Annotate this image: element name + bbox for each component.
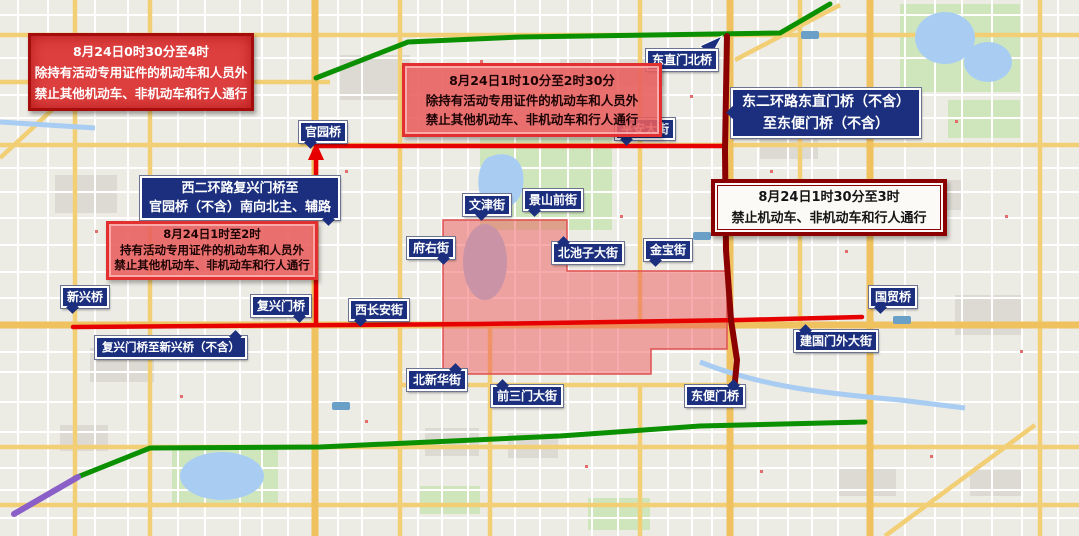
notice-line: 8月24日0时30分至4时 <box>31 41 251 62</box>
route-green-south <box>75 422 865 478</box>
badge-fuyou-street: 府右街 <box>407 237 455 259</box>
badge-label: 西长安街 <box>355 303 403 317</box>
badge-label: 至东便门桥（不含） <box>742 113 910 135</box>
badge-wenjin-street: 文津街 <box>463 194 511 216</box>
badge-label: 金宝街 <box>650 243 686 257</box>
badge-beixinhua-street: 北新华街 <box>407 369 467 391</box>
badge-fuxingmen-to-xinxing: 复兴门桥至新兴桥（不含） <box>95 336 247 359</box>
badge-label: 官园桥（不含）南向北主、辅路 <box>149 198 331 217</box>
badge-label: 府右街 <box>413 241 449 255</box>
badge-jianguomenwai-street: 建国门外大街 <box>794 330 878 352</box>
notice-line: 除持有活动专用证件的机动车和人员外 <box>405 91 659 111</box>
badge-guomao-bridge: 国贸桥 <box>869 286 917 308</box>
notice-line: 除持有活动专用证件的机动车和人员外 <box>31 62 251 83</box>
badge-label: 景山前街 <box>529 193 577 207</box>
notice-line: 持有活动专用证件的机动车和人员外 <box>109 243 315 259</box>
badge-west-changan-street: 西长安街 <box>349 299 409 321</box>
notice-line: 8月24日1时至2时 <box>109 227 315 243</box>
traffic-control-map: 东直门北桥 东二环路东直门桥（不含） 至东便门桥（不含） 平安大街 官园桥 西二… <box>0 0 1079 536</box>
badge-label: 北新华街 <box>413 373 461 387</box>
badge-jinbao-street: 金宝街 <box>644 239 692 261</box>
notice-line: 禁止机动车、非机动车和行人通行 <box>715 208 943 229</box>
badge-label: 新兴桥 <box>67 290 103 304</box>
badge-label: 国贸桥 <box>875 290 911 304</box>
notice-line: 禁止其他机动车、非机动车和行人通行 <box>405 110 659 130</box>
badge-qiansanmen-street: 前三门大街 <box>491 385 563 407</box>
badge-xinxing-bridge: 新兴桥 <box>61 286 109 308</box>
badge-label: 复兴门桥 <box>257 299 305 313</box>
badge-fuxingmen-bridge: 复兴门桥 <box>251 295 311 317</box>
badge-label: 文津街 <box>469 198 505 212</box>
badge-label: 东便门桥 <box>691 389 739 403</box>
notice-line: 禁止其他机动车、非机动车和行人通行 <box>31 83 251 104</box>
badge-dongbianmen-bridge: 东便门桥 <box>685 385 745 407</box>
badge-label: 前三门大街 <box>497 389 557 403</box>
notice-box-top-left: 8月24日0时30分至4时 除持有活动专用证件的机动车和人员外 禁止其他机动车、… <box>28 33 254 111</box>
notice-box-west: 8月24日1时至2时 持有活动专用证件的机动车和人员外 禁止其他机动车、非机动车… <box>106 221 318 280</box>
badge-beichizi-street: 北池子大街 <box>552 242 624 264</box>
notice-line: 禁止其他机动车、非机动车和行人通行 <box>109 258 315 274</box>
badge-guanyuan-bridge: 官园桥 <box>299 121 347 143</box>
notice-box-top-center: 8月24日1时10分至2时30分 除持有活动专用证件的机动车和人员外 禁止其他机… <box>402 63 662 137</box>
badge-label: 西二环路复兴门桥至 <box>149 179 331 198</box>
badge-west-2nd-ring: 西二环路复兴门桥至 官园桥（不含）南向北主、辅路 <box>140 176 340 220</box>
badge-jingshan-front-street: 景山前街 <box>523 189 583 211</box>
notice-line: 8月24日1时10分至2时30分 <box>405 71 659 91</box>
badge-label: 官园桥 <box>305 125 341 139</box>
badge-label: 东二环路东直门桥（不含） <box>742 91 910 113</box>
notice-box-east: 8月24日1时30分至3时 禁止机动车、非机动车和行人通行 <box>711 179 947 236</box>
badge-label: 北池子大街 <box>558 246 618 260</box>
badge-label: 复兴门桥至新兴桥（不含） <box>102 340 240 354</box>
route-purple <box>14 477 78 514</box>
badge-label: 建国门外大街 <box>800 334 872 348</box>
notice-line: 8月24日1时30分至3时 <box>715 187 943 208</box>
badge-east-2nd-ring: 东二环路东直门桥（不含） 至东便门桥（不含） <box>731 88 921 138</box>
